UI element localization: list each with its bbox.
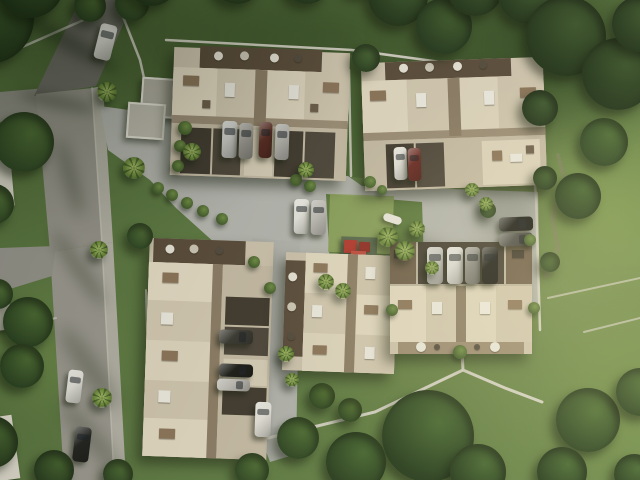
car-se-black-windshield [484, 254, 496, 261]
villa-block-south-middle-furniture-6 [365, 267, 375, 279]
car-nw-gray-windshield [241, 130, 252, 137]
car-se-black [482, 247, 498, 284]
villa-block-southeast-furniture-2 [434, 344, 440, 350]
car-ne-white-windshield [395, 153, 405, 159]
villa-block-southeast-furniture-0 [416, 342, 426, 352]
tree-21 [0, 344, 44, 388]
villa-block-northeast-furniture-10 [526, 145, 534, 153]
villa-block-northeast-furniture-6 [416, 93, 426, 107]
car-sw-black-windshield [239, 366, 246, 375]
villa-block-northeast [361, 57, 547, 191]
car-plaza-black [499, 216, 533, 231]
car-ne-white [393, 147, 407, 180]
car-se-gray-body-highlight [465, 247, 480, 284]
car-nw-darkred-body-highlight [258, 122, 272, 158]
shrub-2 [152, 182, 164, 194]
palm-tree-13 [465, 183, 479, 197]
villa-block-northwest-furniture-8 [202, 100, 210, 108]
shrub-3 [166, 189, 178, 201]
shrub-9 [377, 185, 387, 195]
villa-block-southwest-part-3 [146, 300, 211, 342]
villa-block-northeast-furniture-8 [492, 150, 502, 160]
villa-block-southeast-furniture-5 [508, 300, 522, 309]
shrub-12 [528, 302, 540, 314]
villa-block-southeast-part-8 [496, 286, 532, 342]
van-sw-white-body-highlight [254, 402, 271, 438]
villa-block-northwest-furniture-5 [323, 82, 339, 93]
palm-tree-0 [97, 82, 117, 102]
tree-37 [556, 388, 620, 452]
villa-block-northeast-furniture-7 [484, 91, 494, 105]
palm-tree-15 [183, 143, 201, 161]
palm-tree-7 [409, 221, 425, 237]
shrub-13 [386, 304, 398, 316]
villa-block-south-middle-part-3 [303, 293, 346, 334]
shrub-15 [264, 282, 276, 294]
villa-block-southwest-part-9 [225, 297, 270, 327]
shrub-6 [216, 213, 228, 225]
wall-bottomright-1 [548, 278, 640, 298]
car-nw-darkred [258, 122, 272, 158]
wall-bottomright-2 [584, 318, 640, 332]
shrub-18 [304, 180, 316, 192]
villa-block-southeast-part-9 [456, 286, 466, 342]
car-plaza-black-windshield [519, 219, 526, 229]
car-sw-darkgray-windshield [239, 332, 246, 342]
car-nw-silver [221, 121, 237, 159]
car-sw-black-body-highlight [219, 363, 253, 377]
shrub-8 [364, 176, 376, 188]
car-sw-darkgray [219, 329, 253, 344]
villa-block-southwest-part-2 [148, 262, 213, 302]
villa-block-south-middle-furniture-5 [313, 345, 327, 354]
villa-block-northwest-part-5 [304, 72, 350, 124]
villa-block-south-middle [282, 252, 398, 374]
tree-29 [540, 252, 560, 272]
car-se-gray [465, 247, 480, 284]
villa-block-northeast-furniture-9 [510, 154, 522, 162]
car-nw-silver-body-highlight [221, 121, 237, 159]
villa-block-northwest-furniture-9 [310, 104, 318, 112]
car-courtyard-silver-body-highlight [311, 200, 327, 235]
palm-tree-3 [92, 388, 112, 408]
villa-block-southeast-part-7 [461, 286, 496, 342]
villa-block-northwest-part-2 [172, 67, 218, 119]
villa-block-southwest-furniture-6 [158, 390, 170, 402]
entry-pavilion-lower [126, 102, 166, 141]
tree-16 [522, 90, 558, 126]
villa-block-southeast-furniture-7 [480, 302, 490, 314]
villa-block-southeast-part-3 [506, 242, 532, 284]
villa-block-southwest-furniture-7 [159, 428, 175, 439]
palm-tree-2 [90, 241, 108, 259]
car-courtyard-white [294, 199, 310, 234]
palm-tree-6 [395, 241, 415, 261]
villa-block-southeast-furniture-9 [512, 250, 524, 258]
car-se-gray-windshield [467, 254, 478, 261]
car-courtyard-silver [311, 200, 327, 235]
car-nw-gray-body-highlight [238, 123, 253, 159]
car-ne-white-body-highlight [393, 147, 407, 180]
car-ne-maroon-windshield [409, 154, 419, 160]
car-se-white [447, 247, 463, 284]
shrub-4 [181, 197, 193, 209]
villa-block-southwest-part-5 [144, 380, 209, 420]
car-se-white-body-highlight [447, 247, 463, 284]
shrub-14 [453, 345, 467, 359]
tree-34 [235, 453, 269, 480]
car-nw-silver-2 [274, 124, 289, 160]
villa-block-southeast-furniture-4 [398, 300, 412, 309]
tree-28 [533, 166, 557, 190]
site-plan-render [0, 0, 640, 480]
car-courtyard-silver-windshield [313, 207, 324, 213]
palm-tree-5 [378, 227, 398, 247]
villa-block-southeast-furniture-3 [474, 344, 480, 350]
car-road-left-white-windshield [69, 376, 81, 383]
palm-tree-9 [335, 283, 351, 299]
car-nw-silver-2-windshield [277, 131, 288, 138]
shrub-16 [248, 256, 260, 268]
villa-block-south-middle-furniture-8 [364, 347, 374, 359]
shrub-5 [197, 205, 209, 217]
tree-35 [309, 383, 335, 409]
tree-27 [555, 173, 601, 219]
palm-tree-8 [318, 274, 334, 290]
shrub-11 [524, 234, 536, 246]
shrub-7 [172, 160, 184, 172]
car-sw-silver [217, 378, 250, 391]
path-y-right [463, 370, 542, 402]
villa-block-northwest-part-13 [254, 70, 268, 126]
van-sw-white [254, 402, 271, 438]
car-se-white-windshield [449, 254, 461, 261]
car-sw-silver-windshield [236, 381, 243, 390]
villa-block-south-middle-furniture-3 [313, 263, 327, 272]
car-nw-silver-2-body-highlight [274, 124, 289, 160]
villa-block-northwest-furniture-7 [289, 85, 299, 99]
villa-block-northeast-part-2 [361, 80, 408, 134]
palm-tree-12 [425, 261, 439, 275]
tree-32 [277, 417, 319, 459]
van-sw-white-windshield [257, 409, 269, 416]
car-ne-maroon-body-highlight [407, 148, 421, 181]
car-se-black-body-highlight [482, 247, 498, 284]
car-ne-maroon [407, 148, 421, 181]
villa-block-southwest-furniture-3 [162, 272, 178, 283]
villa-block-southeast-furniture-1 [490, 342, 500, 352]
car-nw-silver-windshield [224, 128, 236, 135]
villa-block-southwest-furniture-5 [162, 350, 178, 361]
villa-block-northwest-furniture-6 [225, 83, 235, 97]
tree-25 [127, 223, 153, 249]
tree-26 [352, 44, 380, 72]
palm-tree-11 [285, 373, 299, 387]
car-courtyard-white-body-highlight [294, 199, 310, 234]
car-sw-black [219, 363, 253, 377]
car-nw-darkred-windshield [261, 129, 271, 136]
tree-20 [3, 297, 53, 347]
villa-block-northwest [170, 47, 350, 181]
palm-tree-10 [278, 346, 294, 362]
tree-36 [338, 398, 362, 422]
villa-block-northeast-part-3 [406, 78, 453, 132]
villa-block-northeast-part-11 [447, 78, 461, 136]
tree-15 [580, 118, 628, 166]
palm-tree-14 [479, 197, 493, 211]
car-sw-silver-body-highlight [217, 378, 250, 391]
villa-block-south-middle-furniture-7 [364, 305, 378, 314]
car-sw-darkgray-body-highlight [219, 329, 253, 344]
villa-block-south-middle-furniture-4 [312, 305, 322, 317]
villa-block-southeast-furniture-6 [432, 302, 442, 314]
villa-block-northwest-furniture-4 [183, 75, 199, 86]
car-courtyard-white-windshield [296, 206, 307, 212]
palm-tree-1 [123, 157, 145, 179]
car-nw-gray [238, 123, 253, 159]
villa-block-northeast-furniture-4 [370, 90, 386, 101]
shrub-0 [178, 121, 192, 135]
car-plaza-black-body-highlight [499, 216, 533, 231]
palm-tree-4 [298, 162, 314, 178]
villa-block-southwest-furniture-4 [161, 312, 173, 324]
